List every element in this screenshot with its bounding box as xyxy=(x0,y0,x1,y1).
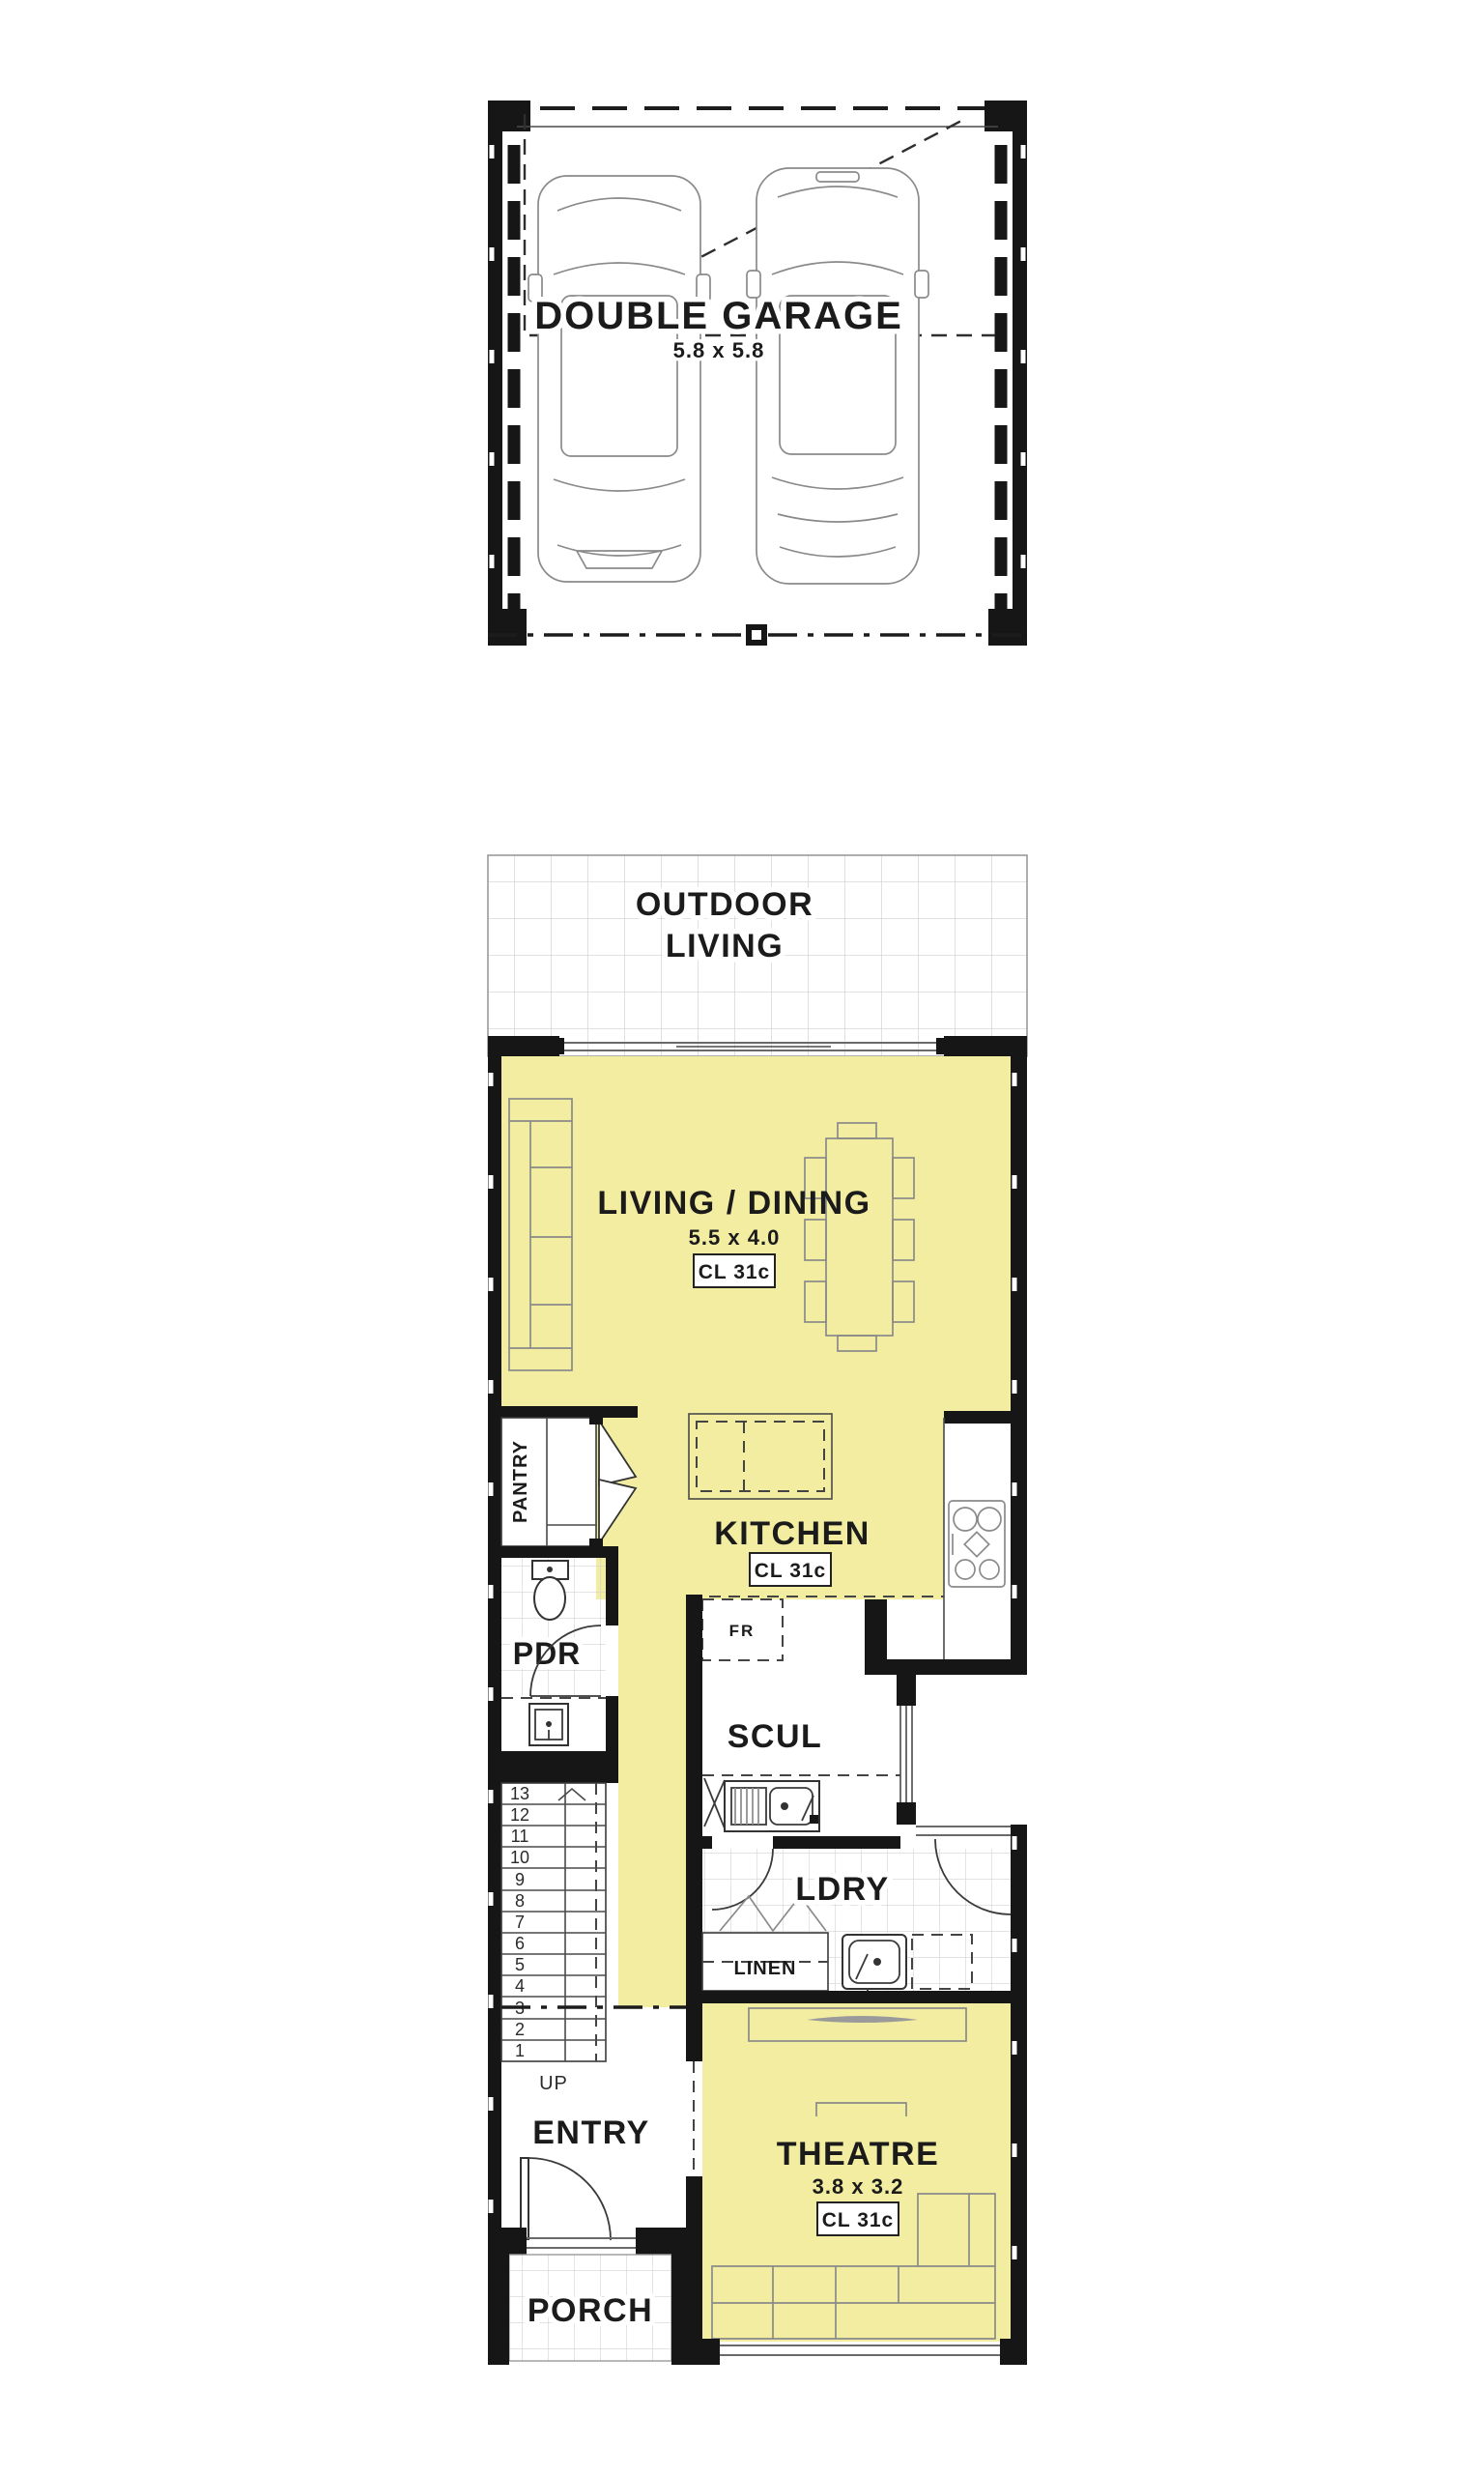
stairs-up-label: UP xyxy=(539,2073,568,2094)
room-entry: ENTRY xyxy=(488,2114,702,2255)
theatre-cl: CL 31c xyxy=(822,2209,895,2231)
cooktop-icon xyxy=(949,1501,1005,1587)
floorplan-canvas: DOUBLE GARAGE 5.8 x 5.8 OUTDOOR LIVING xyxy=(0,0,1484,2474)
scullery-label: SCUL xyxy=(728,1718,823,1755)
laundry-tub-icon xyxy=(842,1935,906,1995)
scullery-window xyxy=(897,1675,916,1825)
fridge-label: FR xyxy=(729,1622,756,1640)
front-door-arc xyxy=(528,2158,611,2240)
car-icon xyxy=(747,168,928,584)
room-outdoor-living: OUTDOOR LIVING xyxy=(488,855,1027,1056)
living-dining-dims: 5.5 x 4.0 xyxy=(689,1225,781,1250)
laundry-label: LDRY xyxy=(795,1871,889,1908)
kitchen-label: KITCHEN xyxy=(714,1515,870,1552)
stair-num: 11 xyxy=(511,1827,529,1846)
vanity-icon xyxy=(501,1698,606,1745)
stair-num: 9 xyxy=(515,1870,525,1889)
room-pdr: PDR xyxy=(488,1558,618,1783)
stair-num: 4 xyxy=(515,1976,525,1996)
living-dining-cl: CL 31c xyxy=(699,1261,771,1283)
garage-plan: DOUBLE GARAGE 5.8 x 5.8 xyxy=(488,101,1027,646)
garage-label: DOUBLE GARAGE xyxy=(534,295,903,337)
pdr-label: PDR xyxy=(513,1636,582,1671)
spine-wall xyxy=(686,1595,702,1836)
stair-num: 7 xyxy=(515,1913,525,1932)
right-exterior-wall-upper xyxy=(1011,1056,1027,1659)
left-exterior-wall xyxy=(488,1056,501,2247)
theatre-window xyxy=(686,2339,1027,2365)
garage-left-wall xyxy=(488,129,502,618)
pantry-label: PANTRY xyxy=(510,1440,531,1523)
stair-num: 12 xyxy=(510,1805,529,1825)
room-scullery: SCUL xyxy=(686,1659,1027,1849)
floorplan-drawing: DOUBLE GARAGE 5.8 x 5.8 OUTDOOR LIVING xyxy=(0,0,1484,2474)
outdoor-living-label-1: OUTDOOR xyxy=(636,886,813,923)
stair-num: 5 xyxy=(515,1955,525,1974)
kitchen-cl: CL 31c xyxy=(755,1560,827,1582)
outdoor-living-label-2: LIVING xyxy=(666,928,784,964)
car-icon xyxy=(528,176,710,582)
corridor-floor xyxy=(618,1599,686,2007)
stair-num: 2 xyxy=(515,2020,525,2039)
toilet-icon xyxy=(532,1561,568,1620)
entry-label: ENTRY xyxy=(532,2114,649,2151)
living-dining-label: LIVING / DINING xyxy=(597,1185,870,1222)
stair-num: 6 xyxy=(515,1934,525,1953)
porch-label: PORCH xyxy=(528,2292,653,2329)
room-porch: PORCH xyxy=(488,2247,702,2365)
stair-num: 13 xyxy=(510,1784,529,1803)
theatre-label: THEATRE xyxy=(777,2136,940,2172)
garage-dims: 5.8 x 5.8 xyxy=(673,338,765,362)
double-sink-icon xyxy=(725,1781,819,1831)
stair-num: 8 xyxy=(515,1891,525,1911)
front-door-leaf xyxy=(521,2158,528,2239)
right-exterior-wall-lower xyxy=(1011,1825,1027,2365)
room-laundry: LDRY LINEN xyxy=(686,1827,1027,2003)
garage-right-wall xyxy=(1013,129,1027,618)
stair-num: 1 xyxy=(515,2041,525,2060)
theatre-dims: 3.8 x 3.2 xyxy=(813,2174,904,2199)
stair-num: 10 xyxy=(510,1848,529,1867)
ground-floor-plan: OUTDOOR LIVING xyxy=(488,855,1027,2365)
theatre-floor xyxy=(702,2003,1011,2342)
linen-label: LINEN xyxy=(734,1958,797,1979)
